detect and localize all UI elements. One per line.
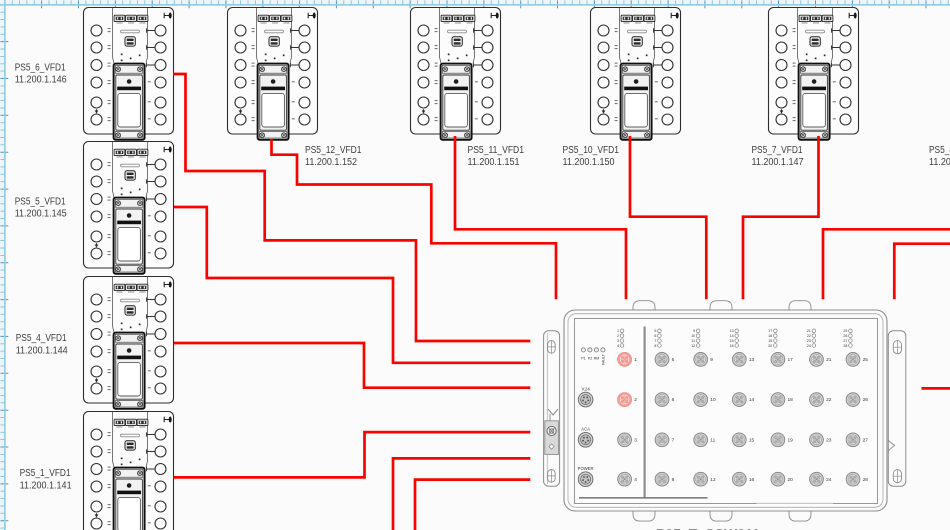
svg-text:19: 19 xyxy=(768,339,772,343)
svg-text:26: 26 xyxy=(863,397,869,403)
svg-text:18: 18 xyxy=(788,397,794,403)
svg-text:7: 7 xyxy=(672,437,675,443)
svg-text:5: 5 xyxy=(672,357,675,363)
svg-text:6: 6 xyxy=(672,397,675,403)
svg-text:13: 13 xyxy=(730,329,734,333)
svg-text:RM: RM xyxy=(594,356,600,360)
svg-text:27: 27 xyxy=(863,437,869,443)
svg-text:PS5_7_VFD1: PS5_7_VFD1 xyxy=(752,145,803,156)
svg-text:8: 8 xyxy=(654,344,656,348)
svg-text:5: 5 xyxy=(654,329,656,333)
svg-text:11.200.1.152: 11.200.1.152 xyxy=(305,157,357,168)
svg-text:18: 18 xyxy=(768,334,772,338)
svg-text:24: 24 xyxy=(826,477,832,483)
svg-text:P1: P1 xyxy=(581,356,585,360)
svg-text:8: 8 xyxy=(672,477,675,483)
svg-text:28: 28 xyxy=(843,344,847,348)
svg-text:6: 6 xyxy=(654,334,656,338)
svg-text:1: 1 xyxy=(617,329,619,333)
svg-text:PS5_5_VFD1: PS5_5_VFD1 xyxy=(15,196,66,207)
svg-text:12: 12 xyxy=(710,477,716,483)
svg-text:PS5_12_VFD1: PS5_12_VFD1 xyxy=(305,145,362,156)
svg-text:15: 15 xyxy=(749,437,755,443)
svg-text:FAULT: FAULT xyxy=(602,353,606,365)
svg-text:19: 19 xyxy=(788,437,794,443)
svg-text:7: 7 xyxy=(654,339,656,343)
svg-text:11.200.1.145: 11.200.1.145 xyxy=(15,209,67,220)
svg-text:23: 23 xyxy=(826,437,832,443)
svg-text:10: 10 xyxy=(710,397,716,403)
svg-text:11.200.1.151: 11.200.1.151 xyxy=(468,157,520,168)
svg-text:22: 22 xyxy=(807,334,811,338)
svg-text:28: 28 xyxy=(863,477,869,483)
svg-text:4: 4 xyxy=(617,344,619,348)
svg-text:PS5_1_VFD1: PS5_1_VFD1 xyxy=(20,468,71,479)
svg-text:POWER: POWER xyxy=(578,466,594,471)
svg-text:16: 16 xyxy=(730,344,734,348)
svg-text:22: 22 xyxy=(826,397,832,403)
svg-text:PS5_4_VFD1: PS5_4_VFD1 xyxy=(16,333,67,344)
svg-text:12: 12 xyxy=(691,344,695,348)
svg-text:PS5_8_VFD1: PS5_8_VFD1 xyxy=(929,145,950,156)
svg-text:14: 14 xyxy=(749,397,755,403)
svg-text:13: 13 xyxy=(749,357,755,363)
svg-text:V.24: V.24 xyxy=(581,386,590,391)
svg-text:2: 2 xyxy=(634,397,637,403)
svg-text:21: 21 xyxy=(807,329,811,333)
svg-text:20: 20 xyxy=(788,477,794,483)
svg-text:16: 16 xyxy=(749,477,755,483)
svg-text:25: 25 xyxy=(843,329,847,333)
svg-text:14: 14 xyxy=(730,334,734,338)
svg-text:11.200.1.147: 11.200.1.147 xyxy=(752,157,804,168)
svg-text:2: 2 xyxy=(617,334,619,338)
svg-text:9: 9 xyxy=(693,329,695,333)
svg-text:11.200.1.141: 11.200.1.141 xyxy=(20,480,72,491)
svg-text:9: 9 xyxy=(710,357,713,363)
svg-text:11.200.1.144: 11.200.1.144 xyxy=(16,345,68,356)
svg-text:26: 26 xyxy=(843,334,847,338)
svg-text:PS5_6_VFD1: PS5_6_VFD1 xyxy=(15,62,66,73)
svg-text:27: 27 xyxy=(843,339,847,343)
svg-text:PS5_11_VFD1: PS5_11_VFD1 xyxy=(468,145,525,156)
svg-text:3: 3 xyxy=(634,437,637,443)
svg-text:21: 21 xyxy=(826,357,832,363)
svg-text:23: 23 xyxy=(807,339,811,343)
svg-text:4: 4 xyxy=(634,477,637,483)
svg-text:PS5_10_VFD1: PS5_10_VFD1 xyxy=(563,145,620,156)
svg-text:10: 10 xyxy=(691,334,695,338)
svg-text:3: 3 xyxy=(617,339,619,343)
svg-text:17: 17 xyxy=(768,329,772,333)
svg-text:24: 24 xyxy=(807,344,811,348)
svg-text:15: 15 xyxy=(730,339,734,343)
svg-text:11: 11 xyxy=(710,437,715,443)
svg-text:1: 1 xyxy=(634,357,637,363)
svg-text:11.200.1.148: 11.200.1.148 xyxy=(929,157,950,168)
svg-text:25: 25 xyxy=(863,357,869,363)
svg-text:20: 20 xyxy=(768,344,772,348)
svg-text:P2: P2 xyxy=(588,356,592,360)
svg-text:11.200.1.150: 11.200.1.150 xyxy=(563,157,615,168)
svg-text:17: 17 xyxy=(788,357,794,363)
svg-text:ACA: ACA xyxy=(581,427,590,432)
svg-text:11: 11 xyxy=(691,339,695,343)
svg-text:11.200.1.146: 11.200.1.146 xyxy=(15,75,67,86)
